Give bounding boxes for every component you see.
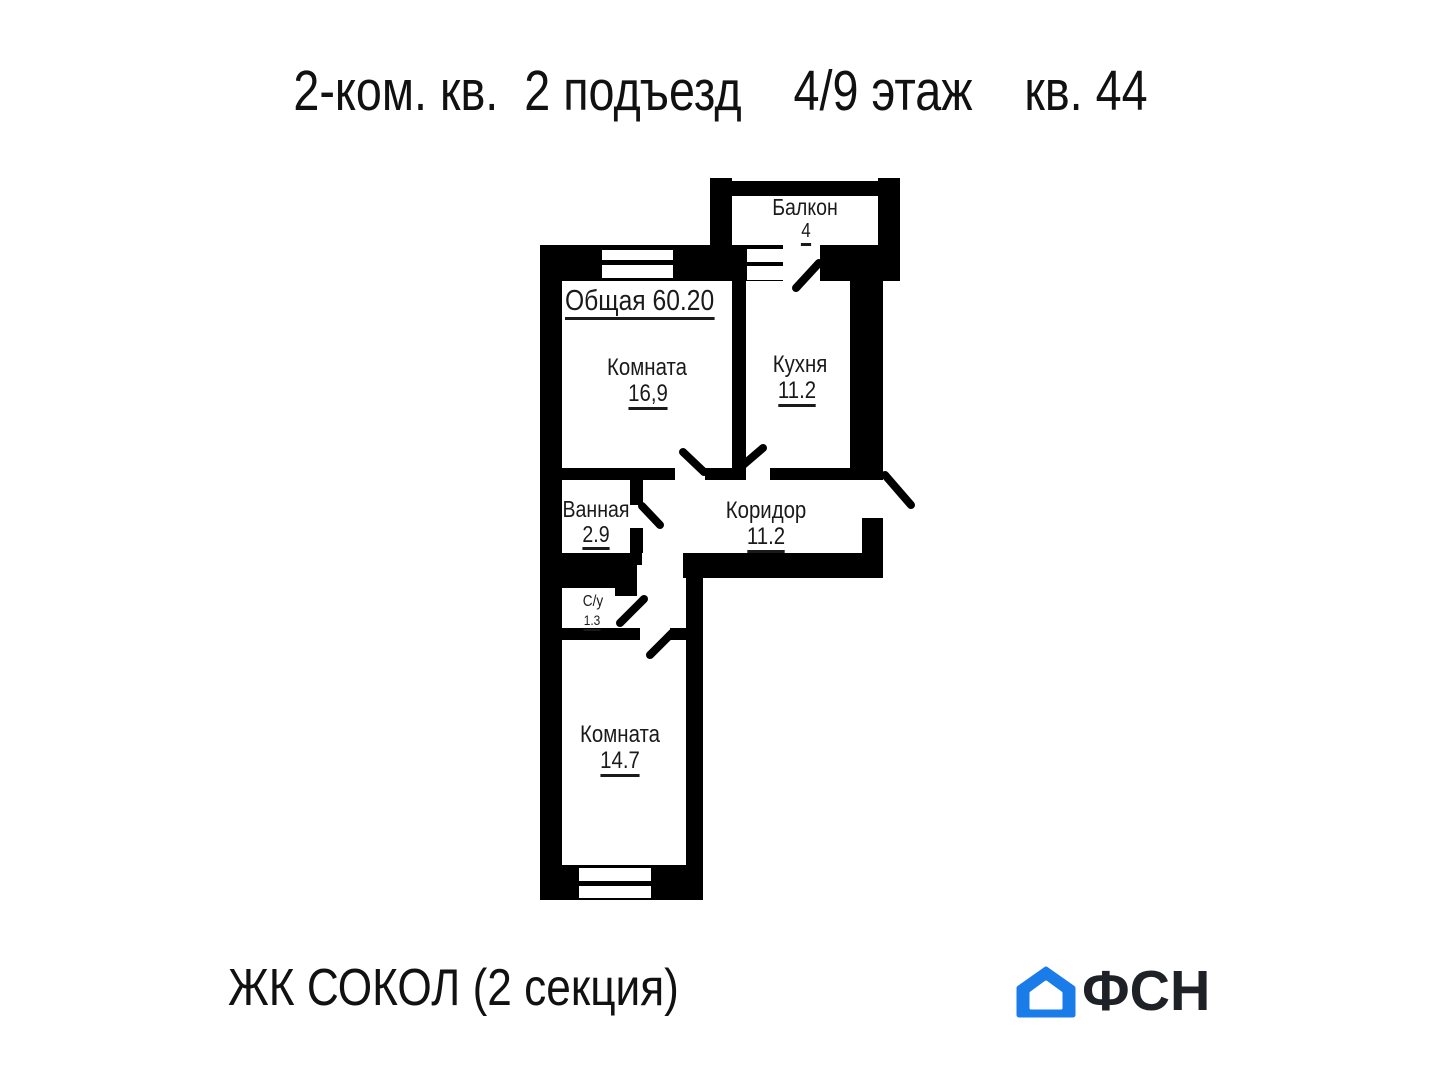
room-label-wc: С/у [551, 594, 636, 611]
door-room2-leaf [650, 633, 672, 655]
wall-lower-right [686, 575, 703, 900]
wall-corridor-bottom [683, 553, 883, 578]
brand-logo: ФСН [1016, 963, 1213, 1020]
wall-corridor-top-right [770, 468, 883, 480]
window-kitchen-balcony-mullion [747, 262, 783, 266]
wall-entrance-stub [862, 518, 883, 553]
door-entrance-leaf [885, 475, 911, 505]
room-area-wc: 1.3 [550, 613, 635, 631]
room-label-corridor: Коридор [698, 498, 834, 523]
room-area-room2: 14.7 [552, 748, 688, 777]
room-area-balcony: 4 [755, 221, 857, 246]
room-area-kitchen: 11.2 [729, 378, 865, 407]
room-label-room2: Комната [552, 722, 688, 747]
door-room1-leaf [683, 452, 704, 472]
room-area-bathroom: 2.9 [528, 522, 664, 550]
room-area-corridor: 11.2 [698, 524, 834, 553]
room-label-kitchen: Кухня [732, 352, 868, 377]
room-area-room1: 16,9 [580, 381, 716, 410]
room-label-room1: Комната [579, 355, 715, 380]
wall-corridor-top-mid [705, 468, 746, 480]
total-area-label: Общая 60.20 [565, 286, 714, 320]
floorplan-page: 2-ком. кв. 2 подъезд 4/9 этаж кв. 44 [0, 0, 1441, 1081]
room-label-balcony: Балкон [754, 195, 856, 219]
wall-corridor-top-left [562, 468, 675, 480]
wall-outer-top [540, 245, 900, 281]
window-room1-mullion [602, 260, 673, 265]
room-label-bathroom: Ванная [528, 497, 664, 521]
complex-name: ЖК СОКОЛ (2 секция) [228, 958, 679, 1018]
wall-bathroom-bottom [540, 553, 642, 565]
house-icon [1016, 966, 1076, 1018]
window-room2-mullion [579, 881, 651, 886]
wall-wc-top [540, 565, 637, 588]
brand-name: ФСН [1082, 963, 1210, 1020]
